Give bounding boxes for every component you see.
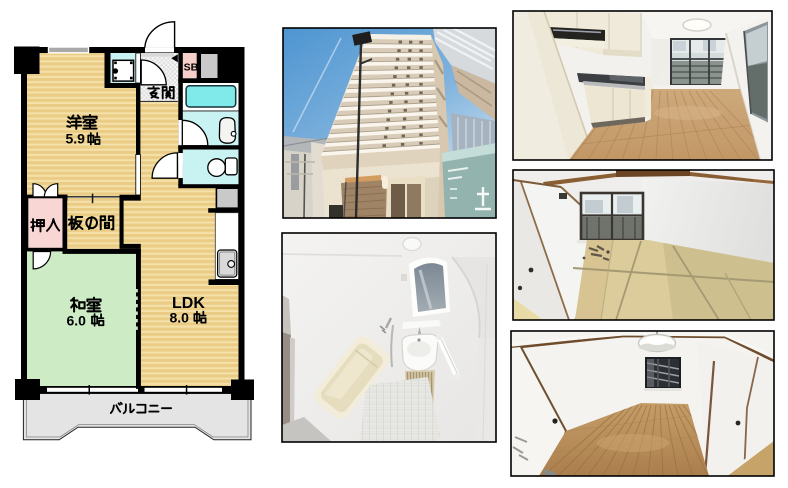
- svg-text:8.0: 8.0: [170, 309, 190, 325]
- svg-text:5.9: 5.9: [66, 131, 86, 147]
- svg-text:SB: SB: [184, 62, 199, 74]
- svg-text:6.0: 6.0: [67, 312, 87, 328]
